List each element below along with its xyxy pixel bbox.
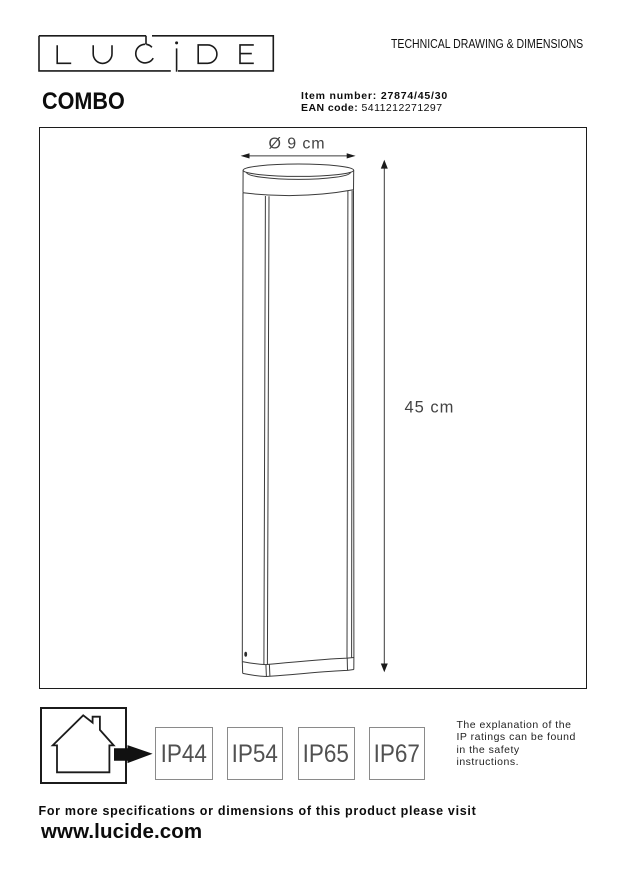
svg-text:Ø 9 cm: Ø 9 cm (269, 136, 326, 153)
svg-text:45 cm: 45 cm (405, 399, 455, 417)
